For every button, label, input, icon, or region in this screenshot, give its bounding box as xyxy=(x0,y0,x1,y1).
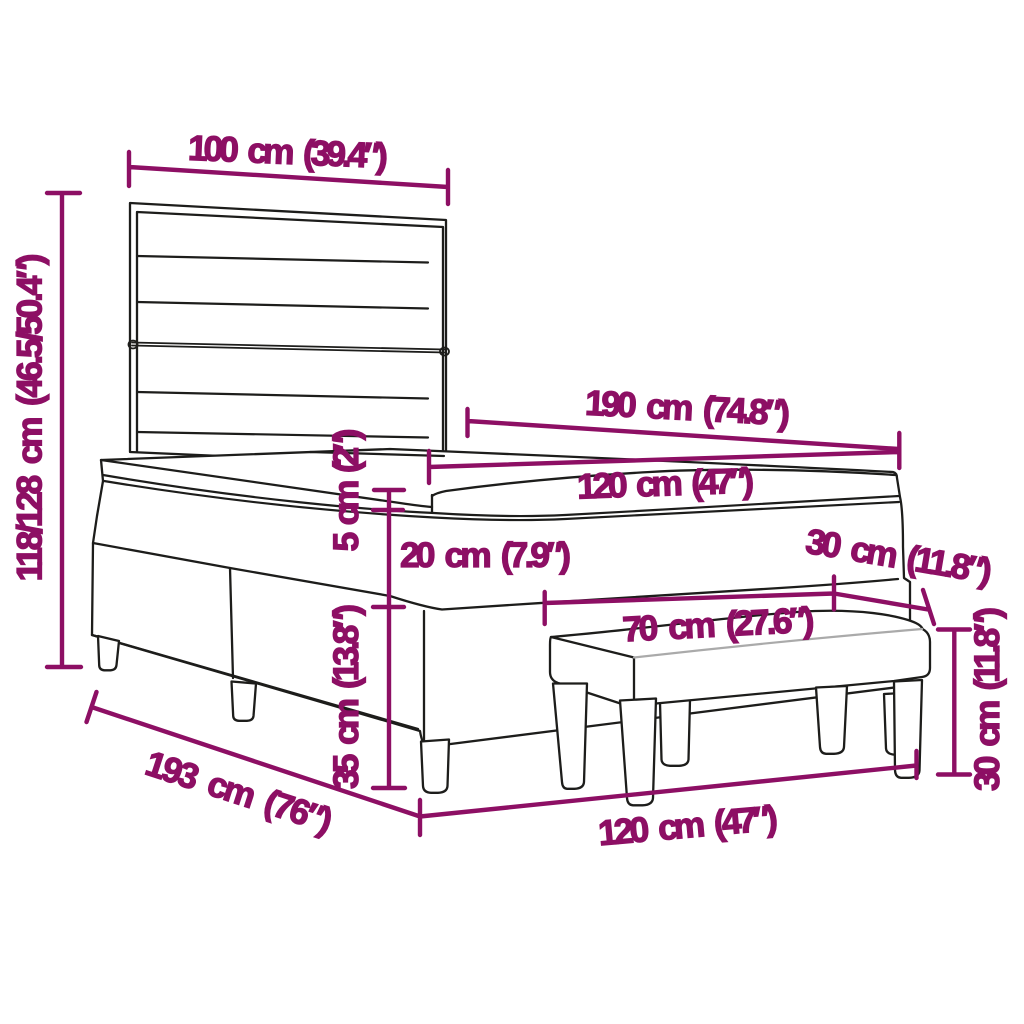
svg-text:100 cm (39.4″): 100 cm (39.4″) xyxy=(187,128,388,176)
svg-text:118/128 cm (46.5/50.4″): 118/128 cm (46.5/50.4″) xyxy=(10,253,50,581)
svg-text:30 cm (11.8″): 30 cm (11.8″) xyxy=(967,607,1007,791)
svg-text:20 cm (7.9″): 20 cm (7.9″) xyxy=(400,535,571,575)
svg-text:35 cm (13.8″): 35 cm (13.8″) xyxy=(326,604,366,789)
svg-text:120 cm (47″): 120 cm (47″) xyxy=(576,460,754,506)
svg-text:5 cm (2″): 5 cm (2″) xyxy=(326,429,366,552)
